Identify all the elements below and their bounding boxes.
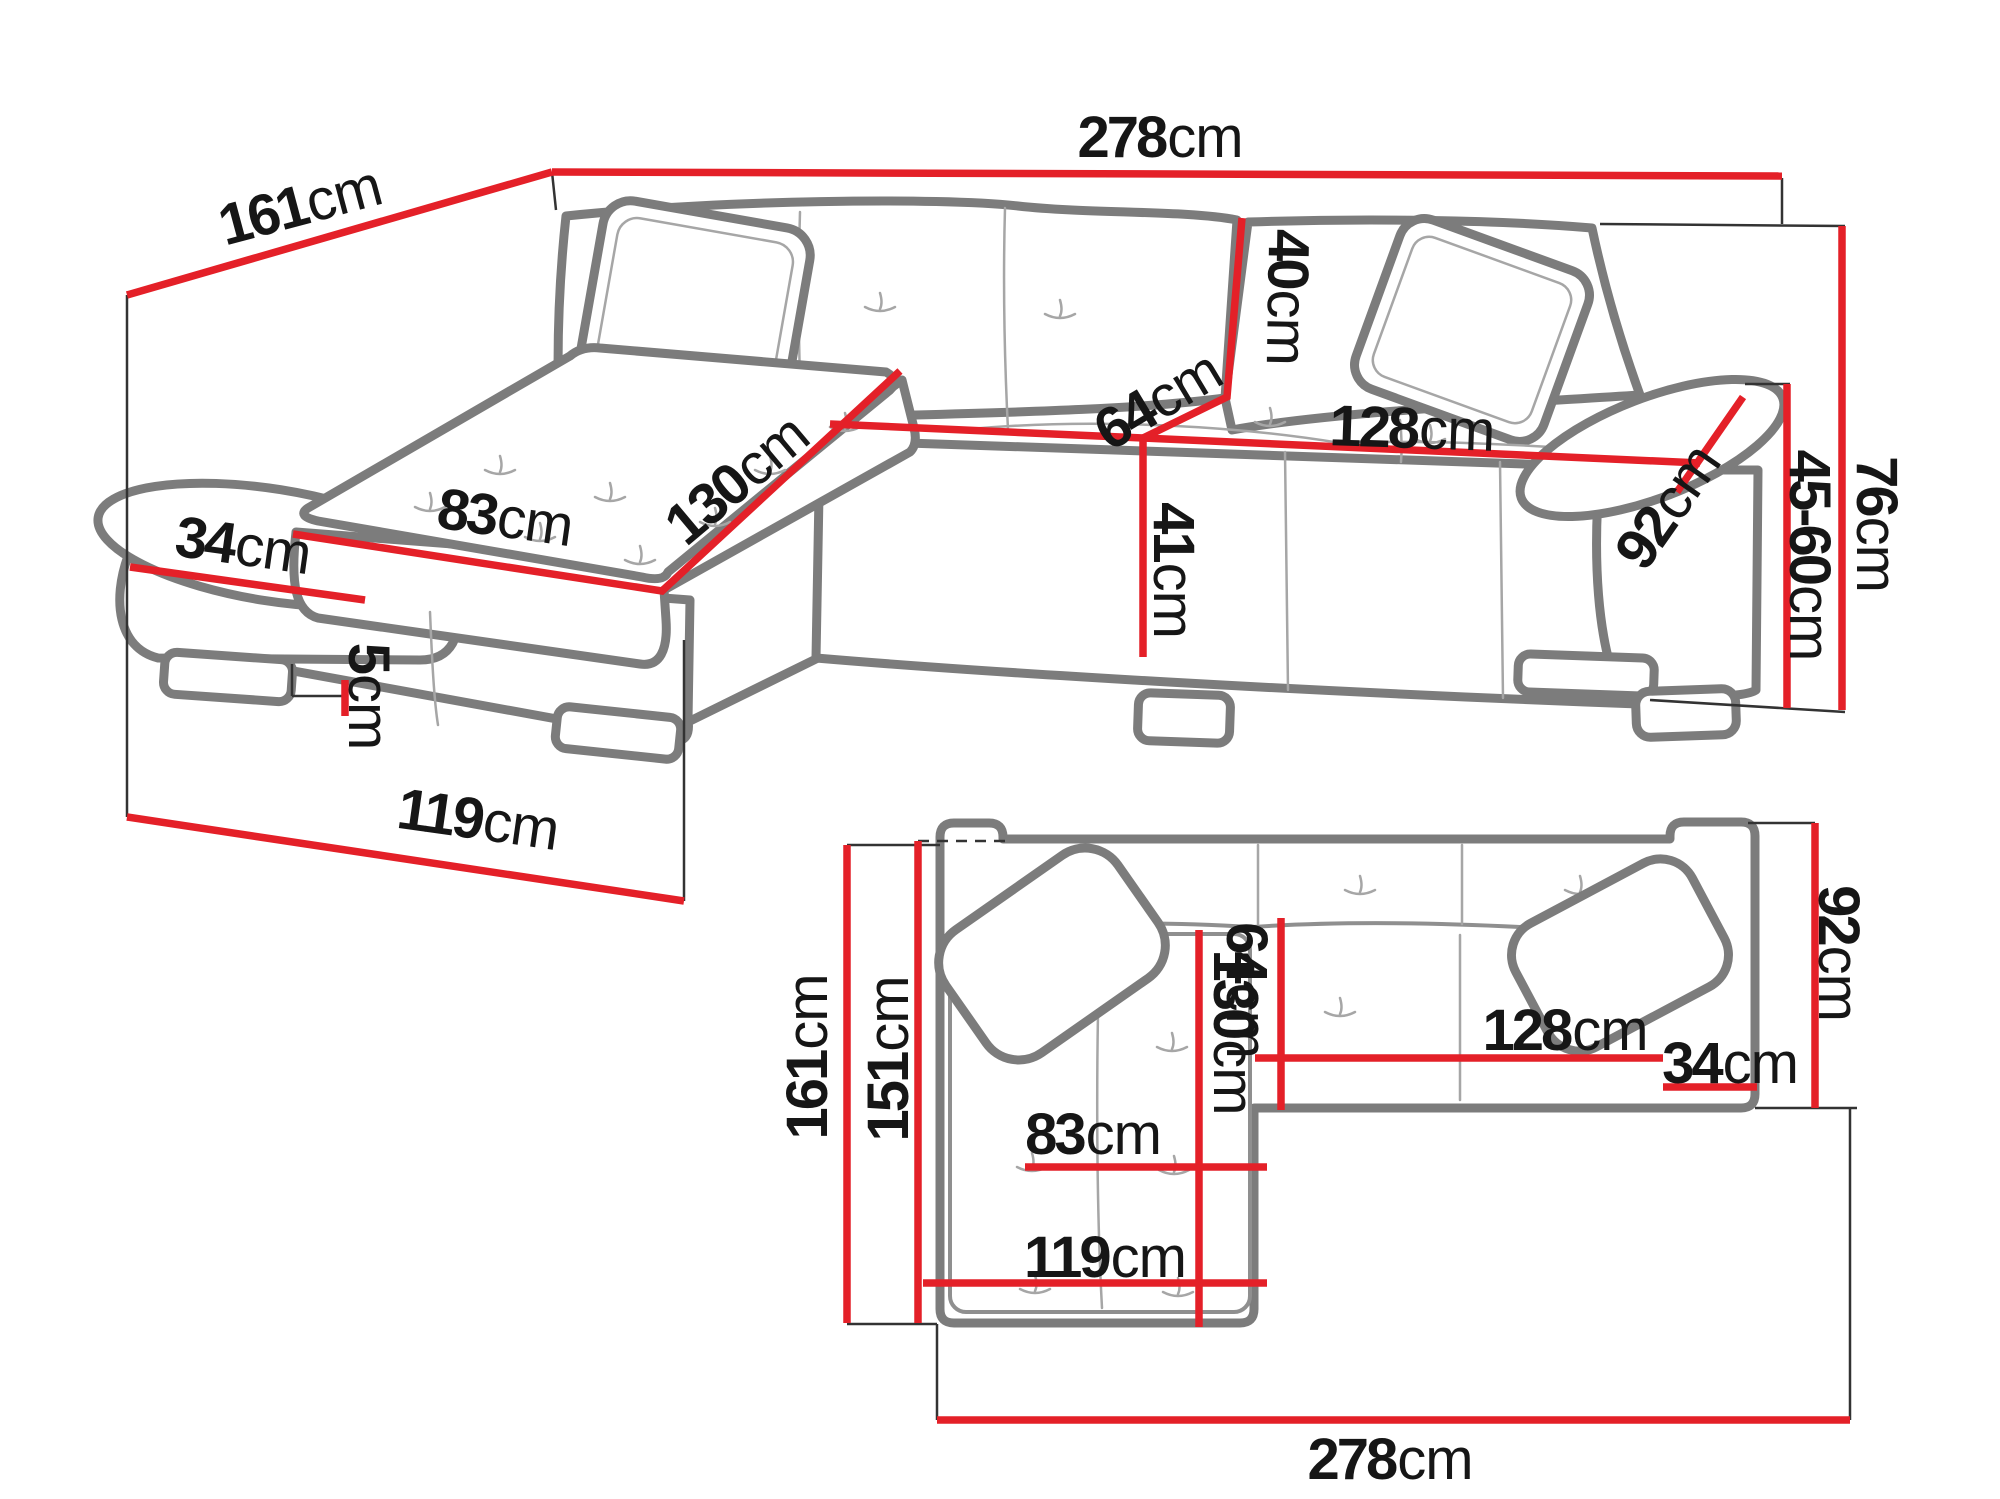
label-plan-section-depth: 92cm — [1809, 885, 1867, 1021]
label-seat-height: 41cm — [1144, 502, 1202, 638]
label-plan-chaise-seat-width: 83cm — [1025, 1106, 1161, 1164]
label-plan-armrest-width: 34cm — [1662, 1035, 1798, 1093]
dim-line-total-width — [552, 172, 1782, 176]
label-total-width: 278cm — [1077, 109, 1242, 167]
label-plan-seat-width: 128cm — [1482, 1002, 1647, 1060]
label-plan-total-width: 278cm — [1307, 1431, 1472, 1489]
label-plan-chaise-footprint: 119cm — [1024, 1229, 1186, 1287]
sofa-leg — [163, 652, 294, 703]
label-plan-inner-depth: 151cm — [860, 976, 918, 1141]
label-total-height: 76cm — [1847, 456, 1905, 592]
sofa-leg — [1635, 688, 1737, 737]
label-backrest-height: 40cm — [1257, 229, 1317, 366]
sofa-dimension-diagram: 161cm 278cm 34cm 83cm 130cm 40cm 64cm 12… — [0, 0, 2000, 1499]
sofa-leg — [1517, 654, 1654, 697]
label-plan-total-depth: 161cm — [779, 974, 837, 1139]
label-leg-height: 5cm — [339, 643, 397, 750]
sofa-leg — [1137, 692, 1231, 743]
label-seat-width: 128cm — [1328, 397, 1495, 461]
label-armrest-height-range: 45-60cm — [1780, 450, 1838, 661]
label-plan-seat-depth: 64cm — [1217, 922, 1275, 1058]
sofa-leg — [554, 706, 682, 761]
